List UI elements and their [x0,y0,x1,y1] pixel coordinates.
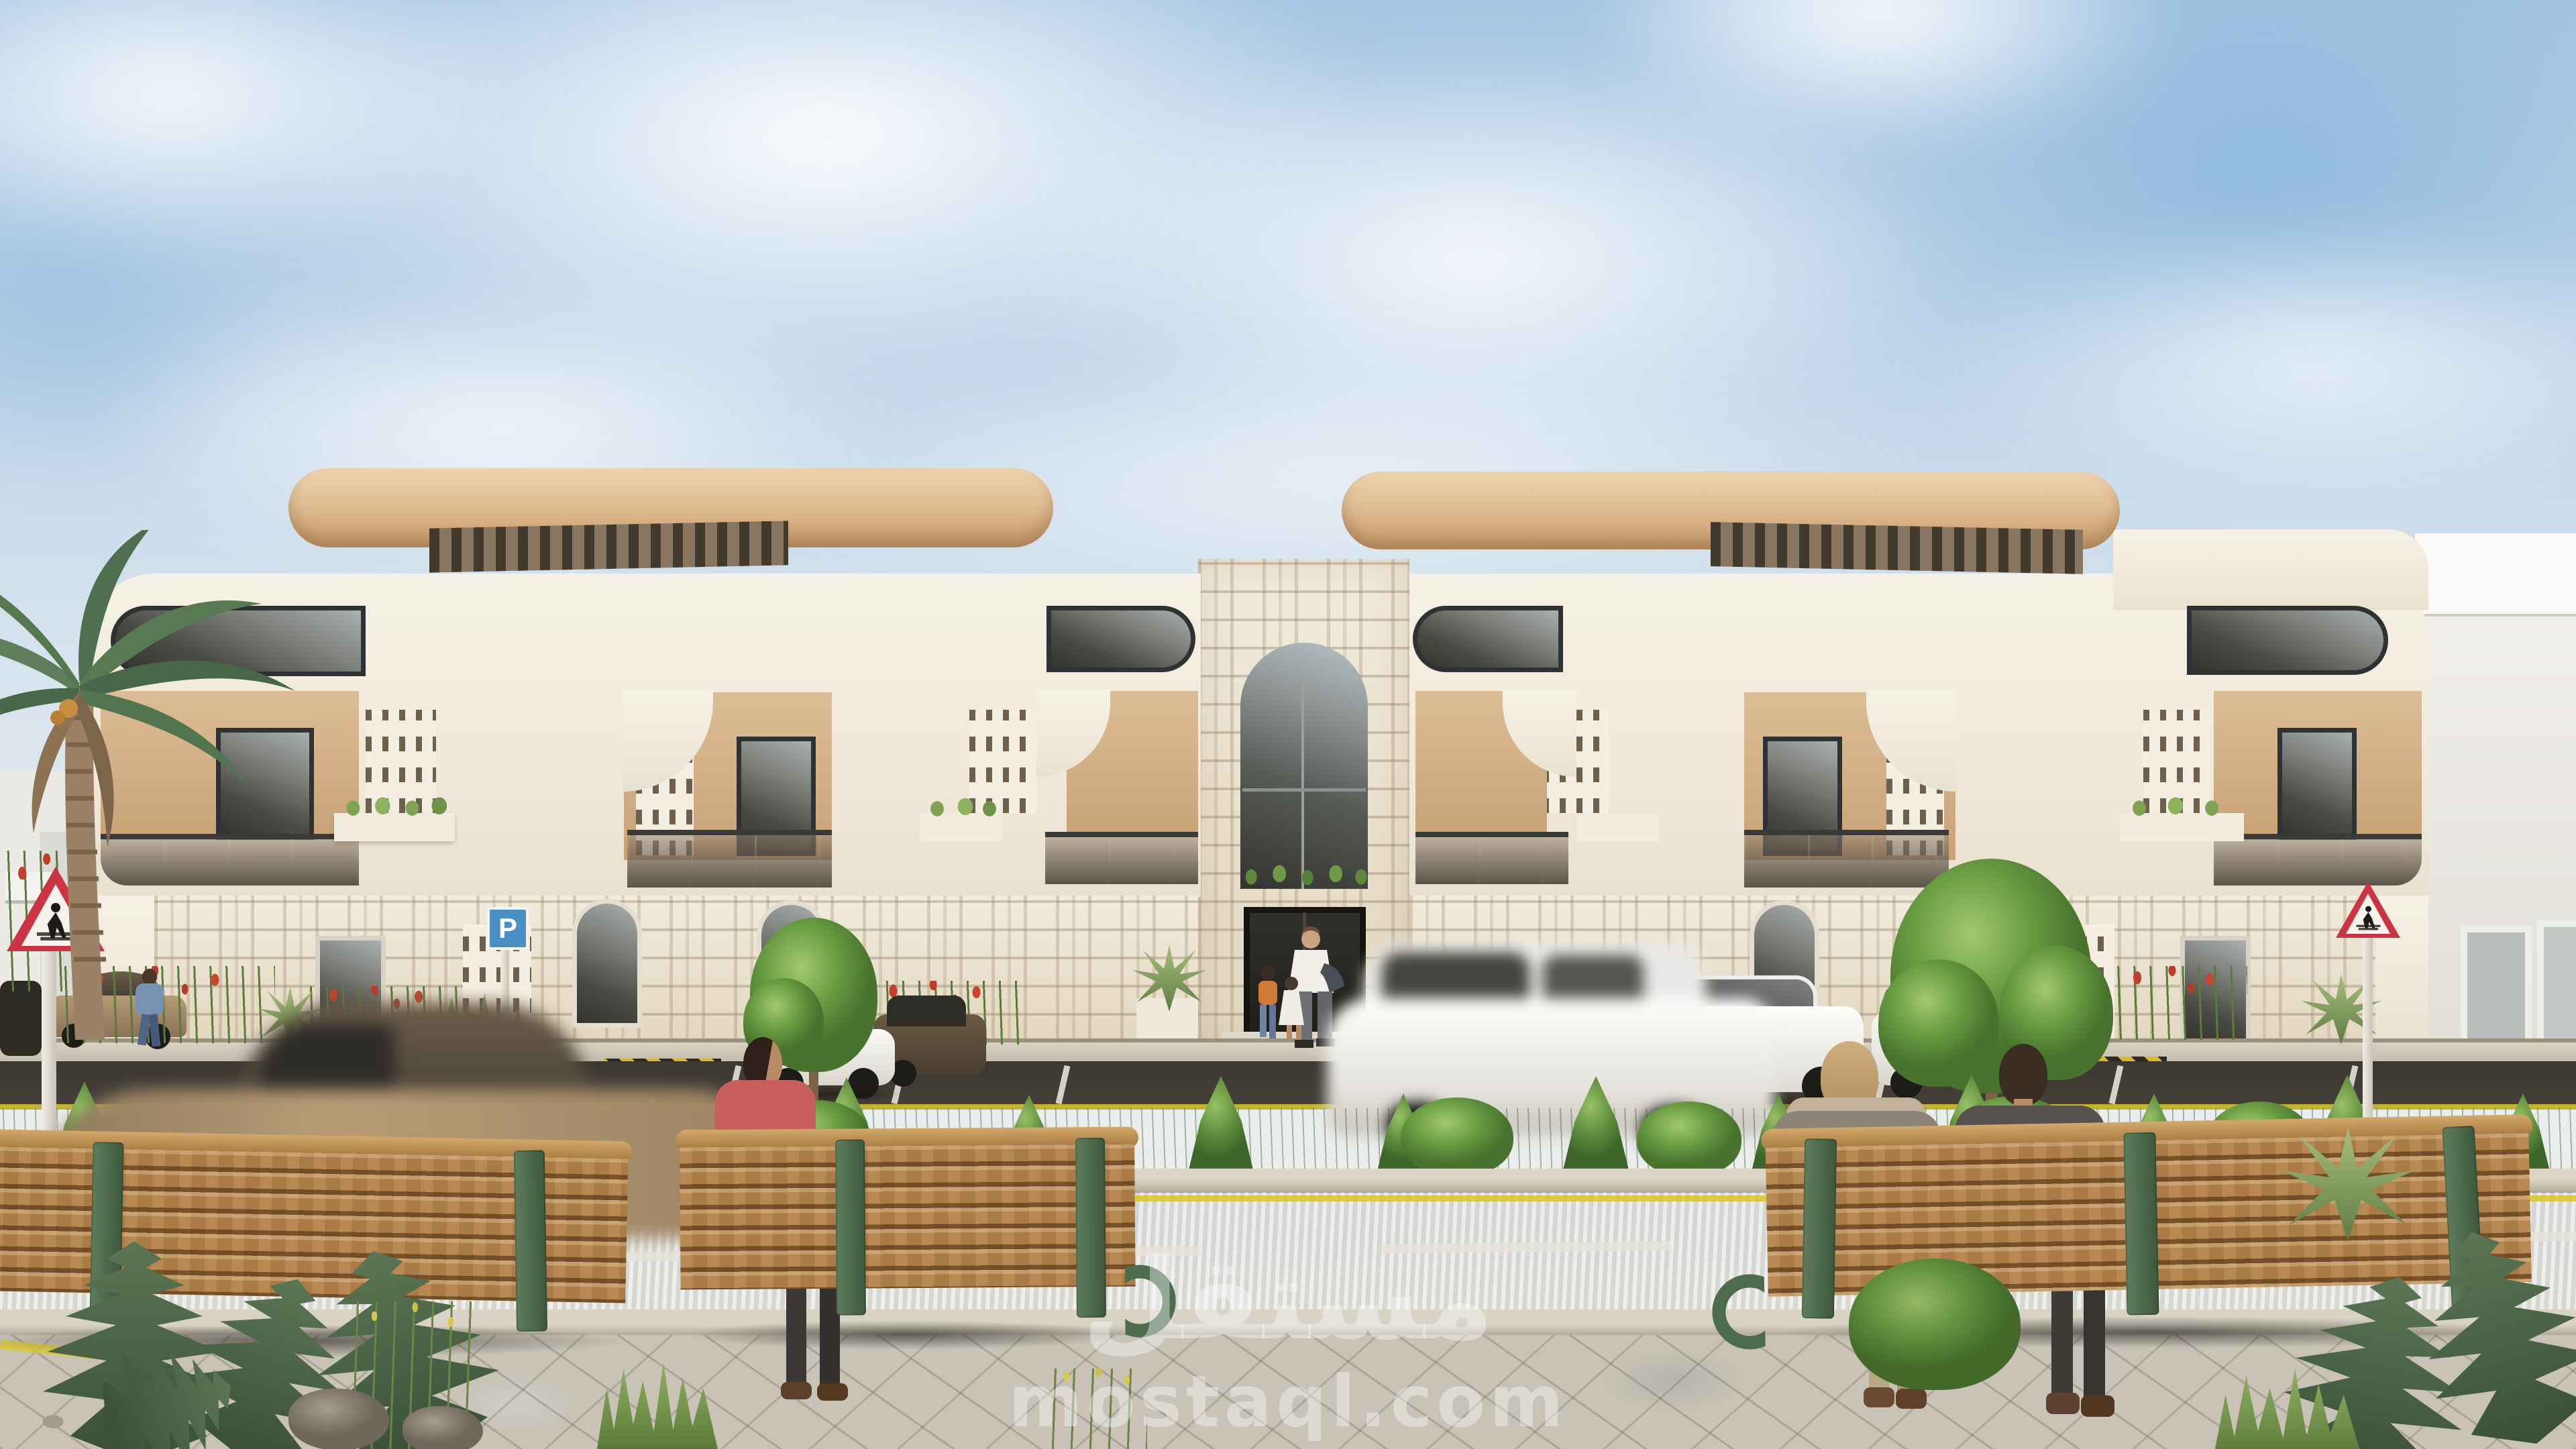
palm-tree [0,530,409,1053]
girl-backpack [1258,981,1277,1005]
man2-boot [2081,1395,2114,1417]
arch-planter-greenery [1234,864,1375,896]
villa-right-corner-window [2187,606,2388,675]
villa-left-pergola-slats [429,521,788,572]
background-window-frame [2461,926,2532,1050]
girl-head [1260,965,1275,980]
bench-frame-post [2123,1132,2159,1316]
villa-right-balustrade [2214,834,2422,885]
bench-frame-post [1802,1138,1837,1319]
car-glass [887,996,966,1026]
bench-frame-post [514,1150,547,1332]
man-red-shoe [817,1383,848,1401]
bush-under-bench [1849,1258,2021,1390]
villa-right-pergola-slats [1711,522,2083,574]
villa-left-planter-greens [921,797,1002,818]
arch-window-mullion [1301,671,1304,889]
villa-left-inner-top-window [1046,606,1195,672]
crossing-pictogram [2353,905,2383,931]
villa-right-planter-greens [2121,796,2242,818]
man2-boot [2046,1393,2080,1414]
architectural-render-scene: P P [0,0,2576,1449]
villa-right-inner-top-window [1413,606,1563,672]
arch-window-mullion [1242,788,1366,792]
woman-boot [1896,1389,1927,1409]
woman-boot [1864,1387,1894,1407]
red-flower-plants [2113,966,2247,1040]
watermark-site: mostaql.com [939,1360,1637,1443]
bench-frame-post [835,1139,866,1315]
villa-left-inner-balustrade [1045,832,1198,884]
watermark-arabic-text: مستقل [1082,1234,1494,1365]
median-bush [1637,1102,1741,1177]
man2-head [1999,1044,2047,1106]
child-head [1285,977,1298,990]
central-arch-window [1240,643,1368,889]
villa-right-parapet [2113,529,2428,610]
villa-right-planter [1576,813,1660,841]
parking-sign: P [487,907,529,950]
parking-sign-label: P [498,912,517,945]
watermark-logo-arabic: مستقل [939,1242,1637,1356]
rock [288,1389,389,1449]
man-red-shoe [781,1382,812,1399]
villa-left-recess-balustrade [627,830,832,888]
villa-right-inner-balustrade [1415,832,1568,884]
watermark-site-text: mostaql.com [1008,1360,1567,1443]
villa-right-balcony-door [2277,728,2357,840]
median-bush [1401,1097,1513,1177]
background-window-frame [2537,920,2576,1053]
